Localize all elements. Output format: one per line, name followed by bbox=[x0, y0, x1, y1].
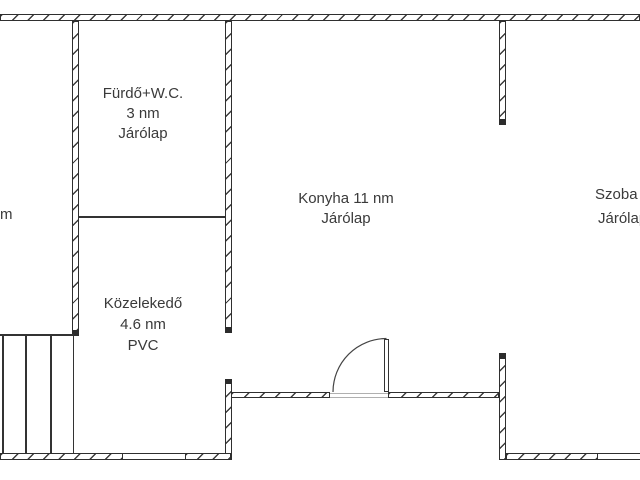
wall-entrance-right bbox=[388, 392, 499, 398]
room-label-line1: Szoba bbox=[595, 185, 638, 205]
wall-bottom-right bbox=[506, 453, 598, 460]
bathroom-label: Fürdő+W.C. 3 nm Járólap bbox=[73, 84, 213, 144]
room-label-line2: Járólap bbox=[598, 209, 640, 229]
wall-kitchen-room-lower bbox=[499, 353, 506, 460]
wall-entrance-left bbox=[231, 392, 330, 398]
stair-tread-line bbox=[25, 334, 27, 453]
stair-tread-line bbox=[2, 334, 4, 453]
wall-kitchen-room-upper bbox=[499, 21, 506, 125]
window-bottom-left bbox=[123, 453, 185, 460]
left-room-label-fragment: m bbox=[0, 205, 13, 225]
wall-bottom-left bbox=[0, 453, 123, 460]
hallway-label: Közelekedő 4.6 nm PVC bbox=[73, 293, 213, 356]
bathroom-label-line1: Fürdő+W.C. bbox=[73, 84, 213, 104]
floor-plan: Fürdő+W.C. 3 nm Járólap Konyha 11 nm Jár… bbox=[0, 0, 640, 480]
door-swing-arc bbox=[0, 0, 640, 480]
window-bottom-right bbox=[598, 453, 640, 460]
kitchen-label-line2: Járólap bbox=[266, 209, 426, 229]
hallway-label-line3: PVC bbox=[73, 335, 213, 356]
wall-bottom-left-2 bbox=[185, 453, 231, 460]
kitchen-label-line1: Konyha 11 nm bbox=[266, 189, 426, 209]
bathroom-label-line2: 3 nm bbox=[73, 104, 213, 124]
wall-top bbox=[0, 14, 640, 21]
bathroom-hallway-divider-line bbox=[78, 216, 225, 218]
wall-endcap bbox=[499, 119, 506, 125]
stair-tread-line bbox=[50, 334, 52, 453]
door-threshold bbox=[330, 393, 388, 398]
wall-bathroom-left bbox=[72, 21, 79, 336]
stairs-top-line bbox=[0, 334, 74, 336]
wall-bathroom-right-upper bbox=[225, 21, 232, 333]
wall-endcap bbox=[225, 379, 232, 384]
bathroom-label-line3: Járólap bbox=[73, 124, 213, 144]
hallway-label-line2: 4.6 nm bbox=[73, 314, 213, 335]
wall-endcap bbox=[499, 353, 506, 359]
hallway-label-line1: Közelekedő bbox=[73, 293, 213, 314]
door-leaf bbox=[384, 339, 389, 392]
kitchen-label: Konyha 11 nm Járólap bbox=[266, 189, 426, 229]
wall-endcap bbox=[225, 327, 232, 333]
